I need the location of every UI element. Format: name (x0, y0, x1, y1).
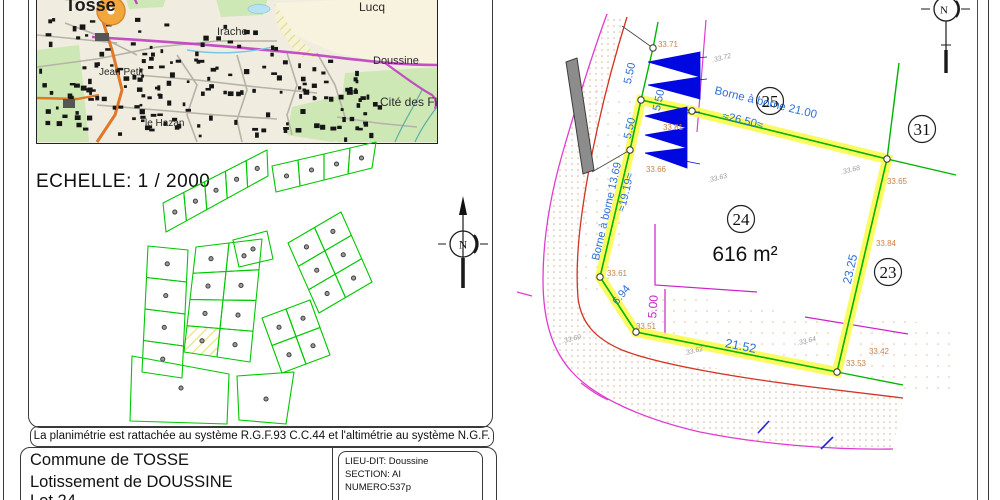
gelev-3: .33.63 (707, 173, 728, 185)
lot-23: 23 (880, 263, 897, 282)
parcel-area-label: 616 m² (712, 243, 777, 266)
dim-550-a: 5.50 (622, 62, 639, 86)
title-block-divider (332, 447, 333, 500)
elev-3384: 33.84 (876, 239, 897, 248)
elev-3366: 33.66 (646, 165, 667, 174)
commune-label: Commune de TOSSE (30, 451, 189, 470)
elev-3365: 33.65 (887, 177, 908, 186)
dim-500: 5.00 (645, 294, 661, 319)
gelev-2: .33.68 (840, 165, 861, 177)
north-letter-right: N (940, 5, 948, 17)
lot-31: 31 (914, 120, 931, 139)
elev-3381: 33.81 (663, 123, 684, 132)
section-label: SECTION: AI (345, 469, 401, 480)
elev-3371: 33.71 (658, 40, 679, 49)
elev-3351: 33.51 (636, 322, 657, 331)
gelev-5: .33.62 (683, 346, 704, 358)
magenta-dash (517, 292, 532, 296)
north-arrow-right: N (921, 0, 970, 73)
lotissement-label: Lotissement de DOUSSINE (30, 473, 233, 492)
north-letter-left: N (459, 240, 468, 252)
north-arrow-left: N (438, 196, 488, 288)
numero-label: NUMERO:537p (345, 482, 411, 493)
lieu-dit-label: LIEU-DIT: Doussine (345, 456, 428, 467)
georef-note: La planimétrie est rattachée au système … (30, 426, 494, 447)
elev-3361: 33.61 (607, 269, 628, 278)
lot-25: 25 (762, 92, 779, 111)
parcel-plan: Borne à borne 21.00 ≈26.50≈ Borne à born… (517, 0, 970, 450)
plan-drawing: N (0, 0, 1000, 500)
lot-label: Lot 24 (30, 492, 76, 500)
elev-3342: 33.42 (869, 347, 890, 356)
cadastre-box: LIEU-DIT: Doussine SECTION: AI NUMERO:53… (338, 451, 483, 500)
gelev-1: .33.72 (711, 53, 732, 65)
lotissement-overview-plan (130, 142, 376, 424)
elev-3353: 33.53 (846, 359, 867, 368)
lot-24: 24 (733, 210, 751, 229)
